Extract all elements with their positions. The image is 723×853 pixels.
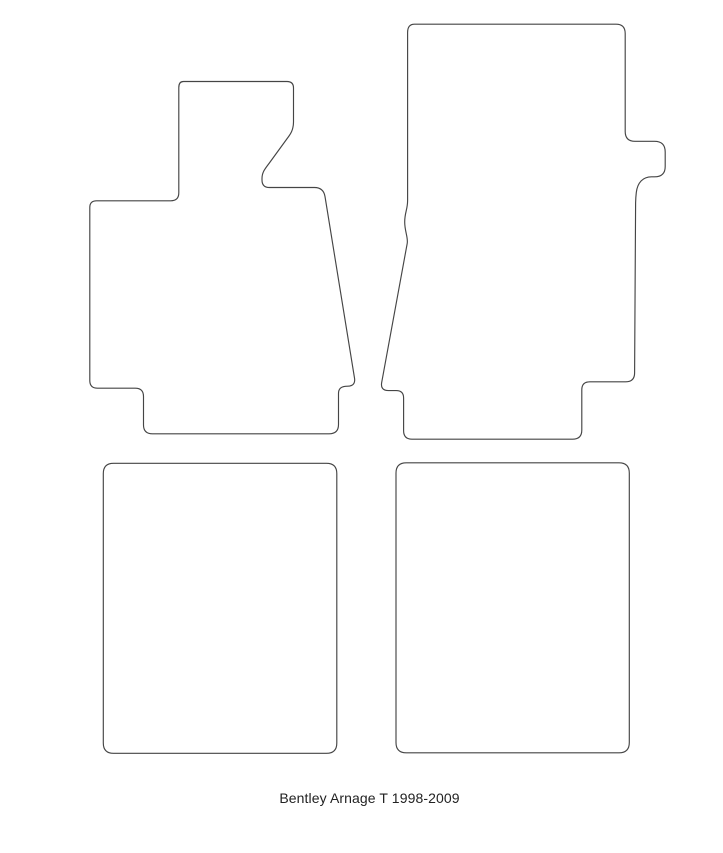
front-left-mat-outline [90, 82, 355, 434]
rear-left-mat-outline [103, 463, 336, 753]
mat-template-drawing [0, 0, 723, 853]
mat-template-sheet: Bentley Arnage T 1998-2009 [0, 0, 723, 853]
front-right-mat-outline [381, 24, 665, 439]
rear-right-mat-outline [396, 463, 629, 753]
caption: Bentley Arnage T 1998-2009 [8, 791, 723, 806]
